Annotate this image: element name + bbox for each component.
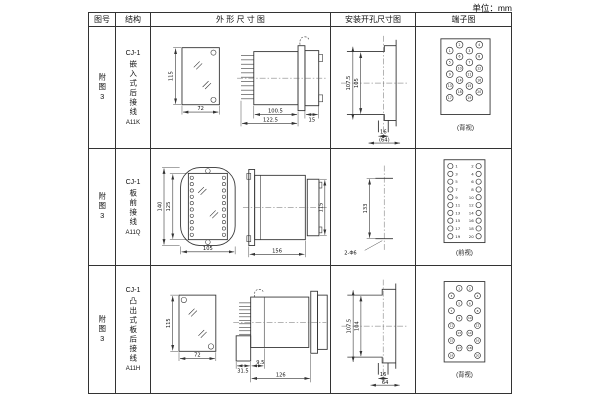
mounting-drawing-a11k: 107.5 105 16 (64) <box>331 28 415 148</box>
dim-body-depth: 100.5 <box>267 108 282 114</box>
row2-terminal-cell: 1234567891011121314151617181920 (前视) <box>416 149 511 266</box>
svg-text:1: 1 <box>455 163 458 168</box>
svg-text:2: 2 <box>468 286 470 290</box>
svg-text:16: 16 <box>475 338 479 342</box>
terminal-view-label: (背视) <box>456 369 473 378</box>
svg-text:17: 17 <box>455 226 460 231</box>
mounting-drawing-a11q: 133 2-Φ6 <box>331 150 415 265</box>
dim-side-height: 115 <box>318 202 324 212</box>
dim-body-depth: 126 <box>275 372 285 378</box>
screw-hole-icon <box>205 239 210 244</box>
terminal-view-label: (前视) <box>456 247 473 256</box>
dim-flange-depth: 15 <box>308 117 315 123</box>
svg-text:15: 15 <box>449 338 453 342</box>
structure-name: 板前接线 <box>129 189 137 227</box>
svg-text:10: 10 <box>468 194 473 199</box>
svg-text:3: 3 <box>455 171 458 176</box>
dim-front-height: 115 <box>166 318 172 328</box>
svg-text:16: 16 <box>477 78 481 82</box>
svg-text:15: 15 <box>467 84 471 88</box>
terminal-pins <box>241 55 254 98</box>
dim-hole-spacing: 133 <box>363 203 369 213</box>
terminal-circles: 1234567891011121314151617181920 <box>446 41 482 101</box>
dim-front-width: 72 <box>194 352 201 358</box>
svg-text:7: 7 <box>450 308 452 312</box>
dim-front-outer-height: 140 <box>157 201 163 211</box>
model-name: CJ-1 <box>126 179 141 186</box>
col-header-mounting: 安装开孔尺寸图 <box>331 13 416 27</box>
col-header-outline: 外 形 尺 寸 图 <box>151 13 331 27</box>
row2-outline-cell: 140 125 105 156 115 <box>151 149 331 266</box>
screw-hole-icon <box>181 297 186 302</box>
svg-text:20: 20 <box>468 233 473 238</box>
outline-drawing-a11h: 115 72 31.5 9.5 126 <box>152 268 330 392</box>
dim-hole-callout: 2-Φ6 <box>344 250 356 256</box>
svg-text:19: 19 <box>455 233 460 238</box>
svg-text:12: 12 <box>475 323 479 327</box>
svg-text:13: 13 <box>447 84 451 88</box>
row1-outline-cell: 115 72 100.5 122.5 15 <box>151 27 331 149</box>
svg-text:9: 9 <box>448 72 450 76</box>
terminal-pins <box>239 302 251 333</box>
dim-cutout-inner-height: 105 <box>354 78 360 88</box>
row1-structure-cell: CJ-1 嵌入式后接线 A11K <box>116 27 151 149</box>
fig-no: 附图3 <box>98 73 106 103</box>
row3-mounting-cell: 107.5 104 16 64 <box>331 266 416 393</box>
svg-text:2: 2 <box>471 163 474 168</box>
svg-text:6: 6 <box>468 301 470 305</box>
svg-text:18: 18 <box>457 90 461 94</box>
svg-text:3: 3 <box>450 293 452 297</box>
structure-name: 嵌入式后接线 <box>129 60 137 117</box>
svg-text:18: 18 <box>467 346 471 350</box>
dim-cutout-inner-height: 104 <box>354 321 360 331</box>
dim-front-height: 115 <box>168 71 174 81</box>
dim-side-width: 156 <box>272 248 282 254</box>
front-view: 115 72 <box>166 295 216 361</box>
dim-gap: 9.5 <box>256 359 264 365</box>
side-view: 156 115 <box>242 169 326 257</box>
fig-no: 附图3 <box>98 192 106 222</box>
svg-text:4: 4 <box>478 42 480 46</box>
row3-structure-cell: CJ-1 凸出式板后接线 A11H <box>116 266 151 393</box>
dim-base-width: 31.5 <box>237 368 248 374</box>
front-view: 140 125 105 <box>157 167 235 254</box>
svg-text:4: 4 <box>471 171 474 176</box>
svg-text:1: 1 <box>458 286 460 290</box>
dim-cutout-outer-height: 107.5 <box>346 75 352 90</box>
svg-text:2: 2 <box>458 42 460 46</box>
front-view: 115 72 <box>168 47 219 114</box>
row2-mounting-cell: 133 2-Φ6 <box>331 149 416 266</box>
svg-text:10: 10 <box>467 316 471 320</box>
side-view: 100.5 122.5 15 <box>237 36 327 126</box>
model-name: CJ-1 <box>126 50 141 57</box>
svg-text:5: 5 <box>458 301 460 305</box>
svg-text:6: 6 <box>458 54 460 58</box>
row1-fig-no-cell: 附图3 <box>89 27 116 149</box>
dim-slot-width: 16 <box>380 372 387 378</box>
dim-overall-width: 64 <box>382 379 389 385</box>
svg-text:8: 8 <box>478 54 480 58</box>
svg-text:5: 5 <box>448 60 450 64</box>
svg-text:17: 17 <box>447 96 451 100</box>
fig-no: 附图3 <box>98 315 106 345</box>
row1-terminal-cell: 1234567891011121314151617181920 (背视) <box>416 27 511 149</box>
screw-hole-icon <box>205 168 210 173</box>
terminal-diagram-a11q: 1234567891011121314151617181920 (前视) <box>417 150 511 265</box>
svg-text:13: 13 <box>455 210 460 215</box>
outline-drawing-a11k: 115 72 100.5 122.5 15 <box>152 28 330 148</box>
screw-hole-icon <box>208 343 213 348</box>
svg-text:12: 12 <box>477 66 481 70</box>
screw-hole-icon <box>210 97 215 102</box>
dim-slot-width: 16 <box>380 129 387 135</box>
side-view: 31.5 9.5 126 <box>233 289 327 382</box>
svg-text:7: 7 <box>468 60 470 64</box>
svg-text:5: 5 <box>455 179 458 184</box>
svg-text:14: 14 <box>457 78 461 82</box>
svg-text:11: 11 <box>455 202 460 207</box>
model-code: A11Q <box>126 230 141 236</box>
structure-name: 凸出式板后接线 <box>129 297 137 364</box>
row1-mounting-cell: 107.5 105 16 (64) <box>331 27 416 149</box>
svg-text:18: 18 <box>468 226 473 231</box>
dim-overall-width: (64) <box>379 137 390 143</box>
row3-outline-cell: 115 72 31.5 9.5 126 <box>151 266 331 393</box>
svg-text:10: 10 <box>457 66 461 70</box>
svg-text:13: 13 <box>457 331 461 335</box>
svg-text:19: 19 <box>467 96 471 100</box>
col-header-terminal: 端子图 <box>416 13 511 27</box>
mounting-drawing-a11h: 107.5 104 16 64 <box>331 268 415 392</box>
terminal-circles: 1234567891011121314151617181920 <box>448 285 480 358</box>
model-code: A11H <box>126 366 141 372</box>
model-code: A11K <box>126 120 140 126</box>
svg-text:9: 9 <box>458 316 460 320</box>
svg-text:14: 14 <box>468 210 473 215</box>
svg-text:7: 7 <box>455 187 458 192</box>
svg-text:6: 6 <box>471 179 474 184</box>
model-name: CJ-1 <box>126 287 141 294</box>
svg-text:3: 3 <box>468 48 470 52</box>
row3-fig-no-cell: 附图3 <box>89 266 116 393</box>
svg-text:19: 19 <box>449 353 453 357</box>
row3-terminal-cell: 1234567891011121314151617181920 (背视) <box>416 266 511 393</box>
dim-front-width: 72 <box>197 106 204 112</box>
svg-text:11: 11 <box>467 72 471 76</box>
dim-front-width: 105 <box>202 245 212 251</box>
svg-text:9: 9 <box>455 194 458 199</box>
row2-fig-no-cell: 附图3 <box>89 149 116 266</box>
row2-structure-cell: CJ-1 板前接线 A11Q <box>116 149 151 266</box>
svg-text:17: 17 <box>457 346 461 350</box>
terminal-diagram-a11k: 1234567891011121314151617181920 (背视) <box>417 28 511 148</box>
dim-overall-depth: 122.5 <box>263 117 278 123</box>
screw-hole-icon <box>210 50 215 55</box>
terminal-diagram-a11h: 1234567891011121314151617181920 (背视) <box>417 268 511 392</box>
svg-text:12: 12 <box>468 202 473 207</box>
terminal-circles: 1234567891011121314151617181920 <box>447 163 481 238</box>
svg-text:4: 4 <box>476 293 478 297</box>
svg-text:16: 16 <box>468 218 473 223</box>
dim-cutout-outer-height: 107.5 <box>346 318 352 333</box>
outline-drawing-a11q: 140 125 105 156 115 <box>152 150 330 265</box>
svg-text:14: 14 <box>467 331 471 335</box>
terminal-strips <box>190 176 225 236</box>
col-header-fig-no: 图号 <box>89 13 116 27</box>
svg-text:15: 15 <box>455 218 460 223</box>
svg-text:1: 1 <box>448 48 450 52</box>
col-header-structure: 结构 <box>116 13 151 27</box>
spec-table: 图号 结构 外 形 尺 寸 图 安装开孔尺寸图 端子图 附图3 CJ-1 嵌入式… <box>88 12 512 394</box>
svg-text:11: 11 <box>449 323 453 327</box>
terminal-view-label: (背视) <box>456 122 473 131</box>
svg-text:8: 8 <box>471 187 474 192</box>
svg-text:8: 8 <box>476 308 478 312</box>
svg-text:20: 20 <box>475 353 479 357</box>
dim-front-inner-height: 125 <box>166 201 172 211</box>
svg-text:20: 20 <box>477 90 481 94</box>
